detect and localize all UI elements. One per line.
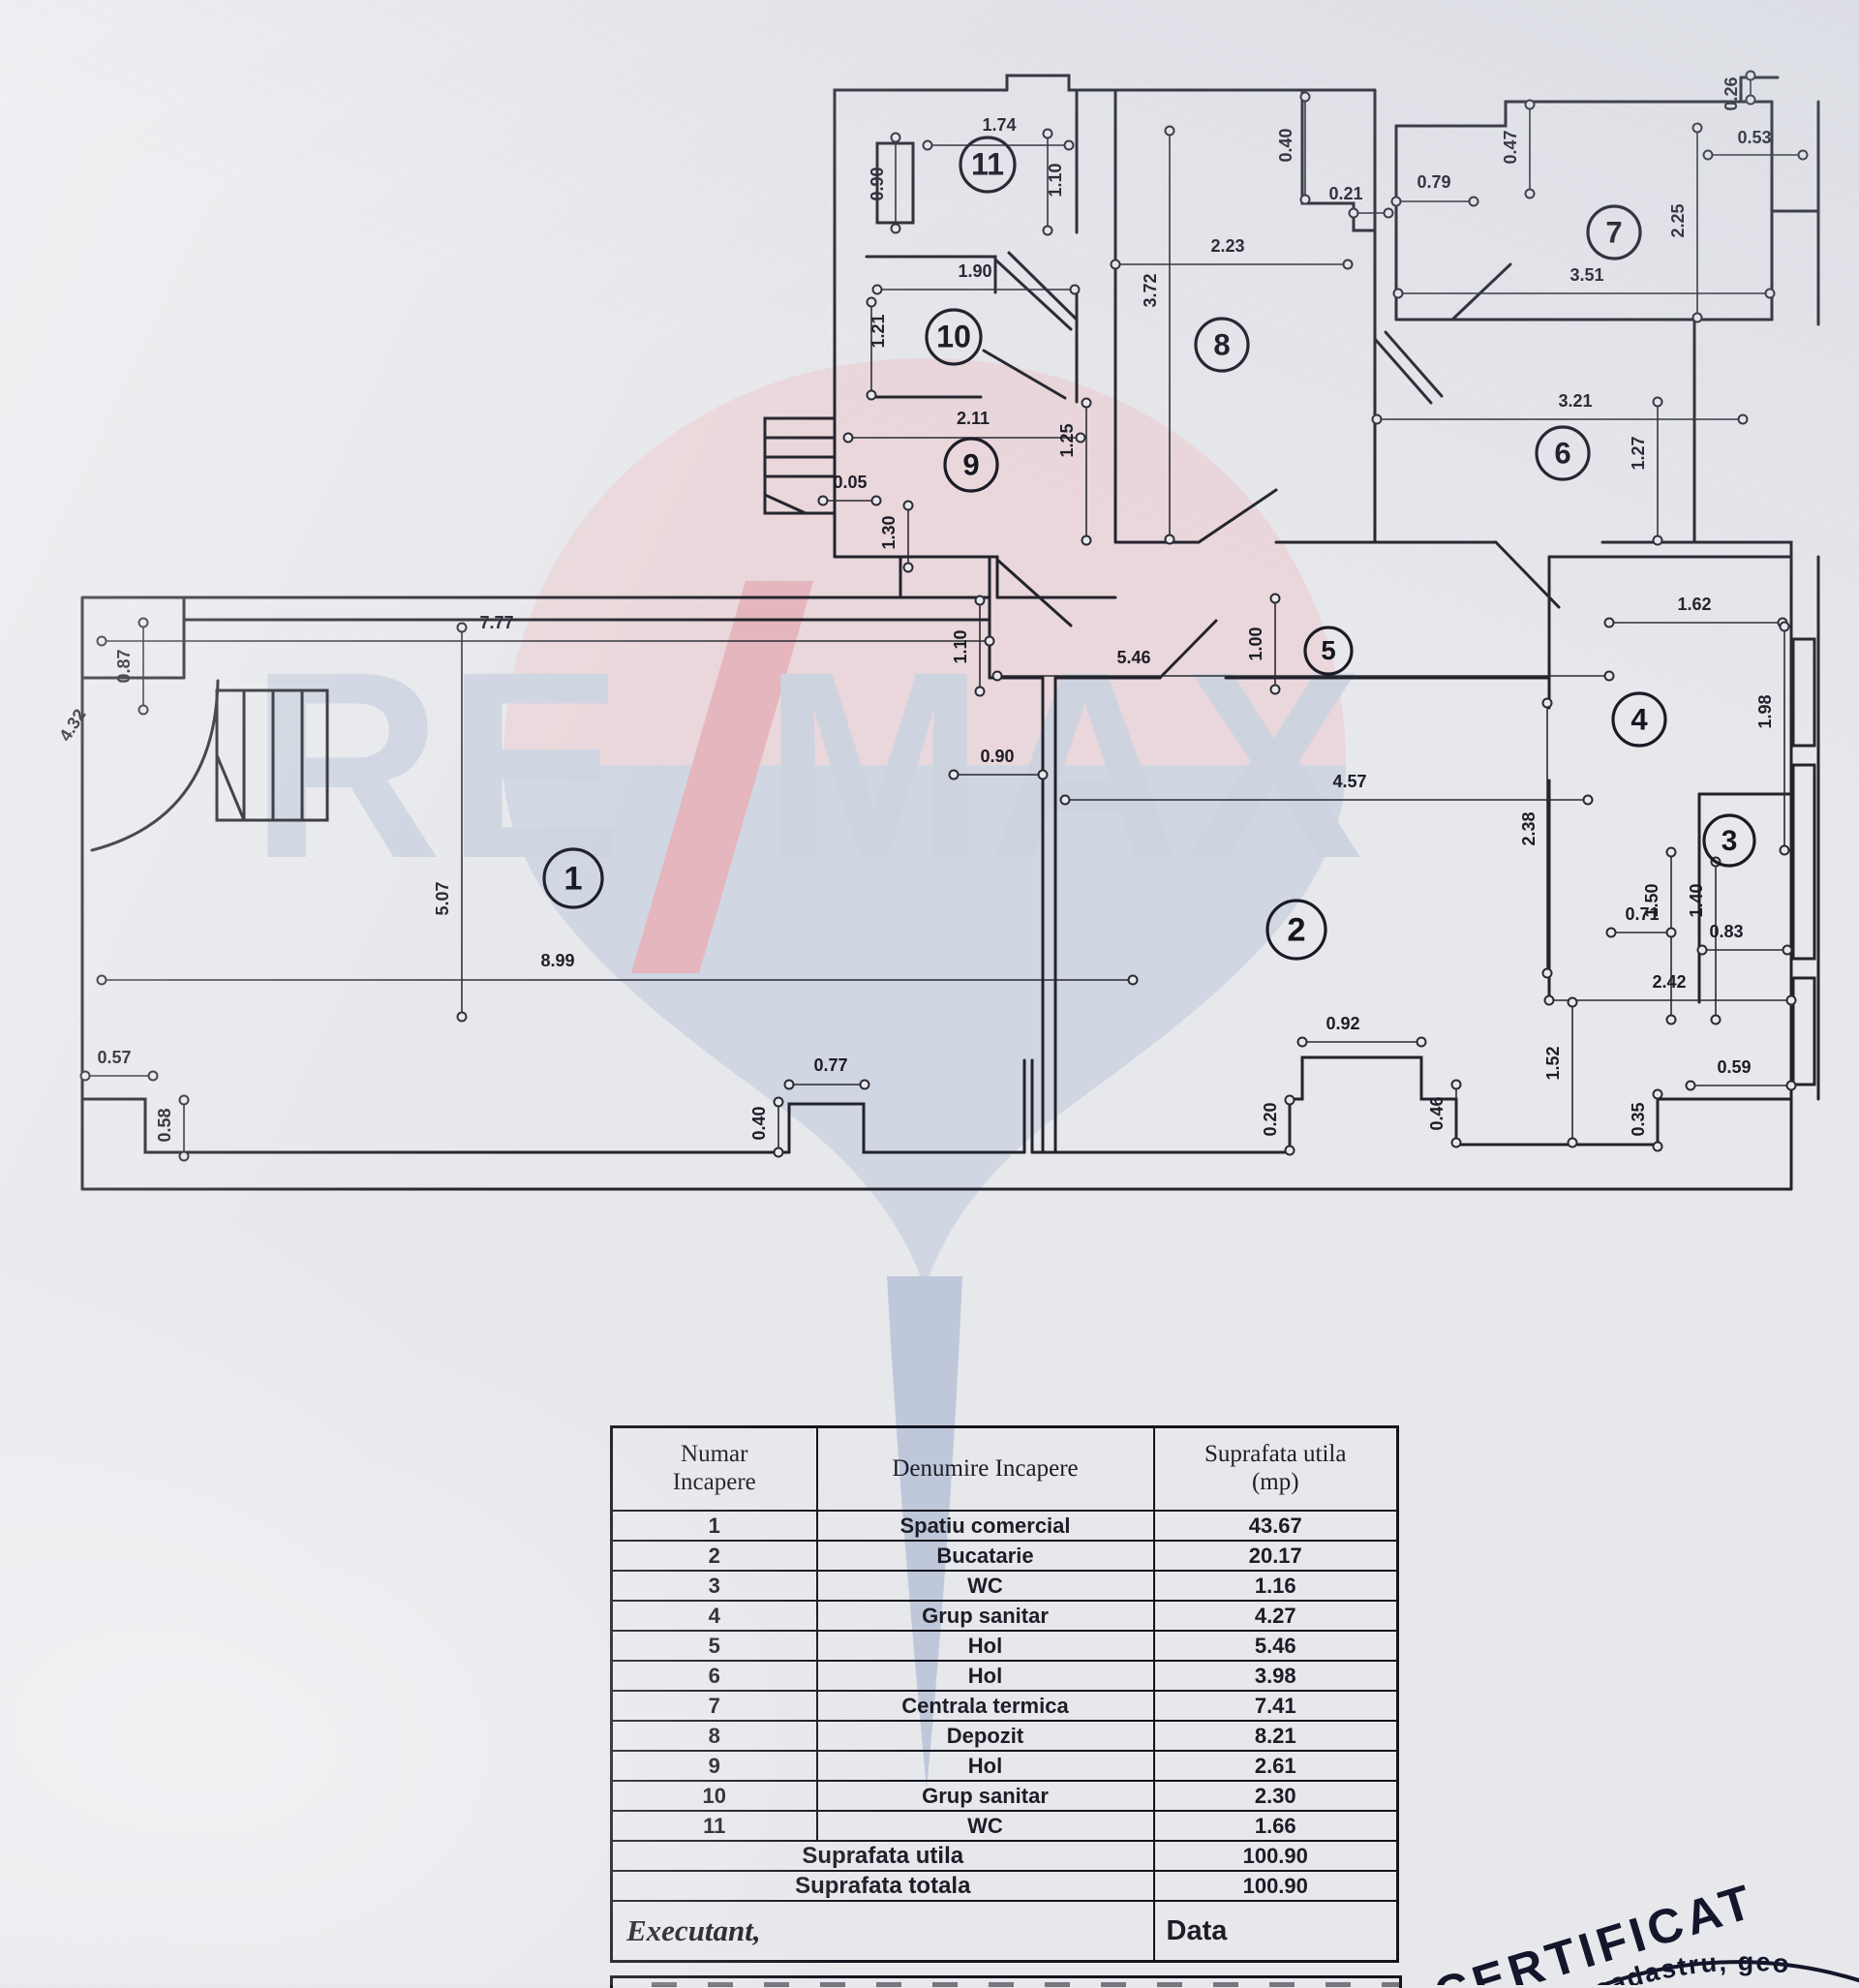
wall-segment [1007, 76, 1375, 90]
dimension: 0.79 [1392, 172, 1478, 206]
dimension: 0.87 [114, 619, 148, 715]
dimension-label: 0.20 [1261, 1102, 1280, 1136]
dimension-label: 8.99 [540, 951, 574, 970]
wall-segment [217, 755, 244, 820]
dimension-node [1392, 198, 1401, 206]
dimension-node [976, 596, 985, 605]
dimension: 1.90 [873, 261, 1080, 294]
dimension-label: 7.77 [479, 613, 513, 632]
dimension-node [1166, 535, 1174, 544]
dimension-label: 0.40 [1276, 128, 1295, 162]
dimension-node [1129, 976, 1138, 985]
table-row: 10Grup sanitar2.30 [612, 1781, 1398, 1811]
table-cell: 6 [612, 1661, 817, 1691]
room-number-label: 11 [971, 147, 1004, 182]
dimension: 2.25 [1668, 124, 1702, 322]
dimension-node [1712, 1016, 1721, 1025]
table-row: 11WC1.66 [612, 1811, 1398, 1841]
dimension-node [844, 434, 853, 443]
dimension-label: 0.87 [114, 649, 134, 683]
dimension-node [1654, 1090, 1662, 1099]
dimension-node [1082, 399, 1091, 408]
wall-segment [82, 1099, 789, 1152]
dimension-node [892, 225, 900, 233]
dimension-node [1569, 998, 1577, 1007]
dimension: 2.42 [1545, 972, 1796, 1005]
dimension-node [872, 497, 881, 505]
table-cell: 1.66 [1154, 1811, 1398, 1841]
dimension-label: 2.38 [1519, 811, 1539, 845]
dimension-node [1061, 796, 1070, 805]
table-cell: 2 [612, 1541, 817, 1571]
dimension-label: 1.25 [1057, 423, 1077, 457]
table-header: NumarIncapereDenumire IncapereSuprafata … [612, 1427, 1398, 1512]
dimension-label: 0.40 [749, 1106, 769, 1140]
column-header: Denumire Incapere [817, 1427, 1154, 1512]
dimension-node [81, 1072, 90, 1081]
room-number: 8 [1196, 319, 1248, 371]
dimension: 0.21 [1328, 184, 1392, 218]
table-row: 6Hol3.98 [612, 1661, 1398, 1691]
dimension-label: 1.27 [1629, 436, 1648, 470]
table-cell: Grup sanitar [817, 1781, 1154, 1811]
dimension: 1.62 [1605, 595, 1787, 627]
dimension-node [924, 141, 932, 150]
wall-segment [1452, 264, 1510, 320]
dimension-node [1799, 151, 1808, 160]
dimension-node [1039, 771, 1048, 780]
dimension-label: 0.21 [1328, 184, 1362, 203]
dimension-label: 1.98 [1755, 694, 1775, 728]
room-number-label: 3 [1722, 825, 1738, 857]
table-cell: 4 [612, 1601, 817, 1631]
table-row: 7Centrala termica7.41 [612, 1691, 1398, 1721]
dimension-node [1286, 1147, 1295, 1155]
dimension-label: 1.30 [879, 515, 899, 549]
table-cell: 3 [612, 1571, 817, 1601]
dimension: 0.90 [868, 134, 900, 233]
dimension-label: 5.07 [433, 881, 452, 915]
dimension-node [993, 672, 1002, 681]
room-number-label: 1 [564, 860, 582, 897]
dimension-label: 0.59 [1717, 1057, 1751, 1077]
dimension-label: 0.71 [1625, 904, 1659, 924]
dimension-node [1044, 227, 1052, 235]
room-number-label: 9 [962, 447, 979, 481]
dimension-label: 0.26 [1722, 76, 1741, 110]
wall-segment [1290, 1057, 1791, 1152]
dimension-label: 2.23 [1210, 236, 1244, 256]
dimension-node [1605, 619, 1614, 627]
wall-segment [995, 260, 1071, 329]
dimension-node [1044, 130, 1052, 138]
wall-segment [1009, 253, 1077, 320]
table-cell: 5.46 [1154, 1631, 1398, 1661]
summary-value: 100.90 [1154, 1841, 1398, 1871]
dimension-node [1667, 848, 1676, 857]
table-row: 4Grup sanitar4.27 [612, 1601, 1398, 1631]
executant-label: Executant, [612, 1901, 1154, 1962]
table-cell: Spatiu comercial [817, 1511, 1154, 1541]
dimension: 0.53 [1704, 128, 1808, 160]
dimension-node [1787, 1082, 1796, 1090]
dimension-node [861, 1081, 869, 1089]
dimension: 1.52 [1543, 998, 1577, 1147]
dimension: 0.71 [1607, 904, 1676, 937]
dimension-label: 0.92 [1326, 1014, 1359, 1033]
dimension-node [1787, 996, 1796, 1005]
dimension-label: 1.52 [1543, 1046, 1563, 1080]
dimension-node [1543, 699, 1552, 708]
table-cell: 7.41 [1154, 1691, 1398, 1721]
wall-segment [1793, 639, 1814, 746]
dimension-node [1373, 415, 1382, 424]
table-cell: Grup sanitar [817, 1601, 1154, 1631]
room-number-label: 5 [1321, 635, 1335, 665]
dimension-node [180, 1152, 189, 1161]
dimension-node [1286, 1096, 1295, 1105]
dimension-label: 3.72 [1141, 273, 1160, 307]
dimension-node [1781, 623, 1789, 631]
dimension: 0.40 [1276, 93, 1310, 204]
wall-segment [1302, 90, 1375, 230]
table-header-row: NumarIncapereDenumire IncapereSuprafata … [612, 1427, 1398, 1512]
table-cell: 4.27 [1154, 1601, 1398, 1631]
table-cell: 10 [612, 1781, 817, 1811]
dimension-node [986, 637, 994, 646]
table-row: 9Hol2.61 [612, 1751, 1398, 1781]
dimension-node [873, 286, 882, 294]
dimension-label: 0.46 [1427, 1096, 1447, 1130]
table-cell: Hol [817, 1751, 1154, 1781]
dimension-node [868, 391, 876, 400]
dimension-node [1166, 127, 1174, 136]
cut-off-table-row [610, 1975, 1402, 1988]
table-cell: 9 [612, 1751, 817, 1781]
dimension: 0.40 [749, 1098, 783, 1157]
dimension-node [1071, 286, 1080, 294]
table-body: 1Spatiu comercial43.672Bucatarie20.173WC… [612, 1511, 1398, 1901]
room-number-label: 6 [1554, 436, 1570, 470]
dimension-label: 1.00 [1246, 627, 1265, 660]
dimension-node [1452, 1139, 1461, 1147]
dimension: 0.26 [1722, 72, 1755, 111]
dimension-label: 1.10 [1046, 163, 1065, 197]
table-cell: Centrala termica [817, 1691, 1154, 1721]
room-number-label: 10 [936, 320, 971, 354]
dimension-node [1543, 969, 1552, 978]
table-cell: 7 [612, 1691, 817, 1721]
dimension-node [1065, 141, 1074, 150]
dimension-node [1298, 1038, 1307, 1047]
dimension-node [1654, 1143, 1662, 1151]
dimension-label: 0.53 [1737, 128, 1771, 147]
dimension-node [149, 1072, 158, 1081]
dimension: 3.51 [1394, 265, 1775, 298]
table-row: 1Spatiu comercial43.67 [612, 1511, 1398, 1541]
dimension-node [904, 502, 913, 510]
table-cell: Bucatarie [817, 1541, 1154, 1571]
wall-segment [1386, 332, 1442, 396]
room-number-label: 8 [1213, 327, 1230, 361]
dimension-node [1667, 1016, 1676, 1025]
dimension-node [1781, 846, 1789, 855]
dimension-node [458, 1013, 467, 1022]
table-cell: 8.21 [1154, 1721, 1398, 1751]
dimension: 0.57 [81, 1048, 158, 1081]
table-cell: 3.98 [1154, 1661, 1398, 1691]
dimension-node [976, 688, 985, 696]
table-cell: 11 [612, 1811, 817, 1841]
dimension-node [1747, 96, 1755, 105]
dimension: 2.38 [1519, 699, 1552, 978]
column-header: NumarIncapere [612, 1427, 817, 1512]
dimension-label: 1.62 [1677, 595, 1711, 614]
dimension-label: 1.40 [1687, 883, 1706, 917]
dimension-label: 2.25 [1668, 203, 1688, 237]
dimension-node [1271, 686, 1280, 694]
dimension: 3.21 [1373, 391, 1748, 424]
dimension-label: 3.21 [1558, 391, 1592, 411]
table-cell: 20.17 [1154, 1541, 1398, 1571]
dimension-node [1545, 996, 1554, 1005]
dimension-label: 0.83 [1709, 922, 1743, 941]
dimension-node [1077, 434, 1085, 443]
dimension-label: 0.77 [813, 1055, 847, 1075]
dimension-node [1654, 398, 1662, 407]
dimension: 2.23 [1112, 236, 1353, 269]
dimension-label: 0.57 [97, 1048, 131, 1067]
summary-label: Suprafata utila [612, 1841, 1154, 1871]
dimension-node [1698, 946, 1707, 955]
dimension-label: 0.05 [833, 473, 867, 492]
dimension-label: 1.10 [951, 629, 970, 663]
dimension: 0.20 [1261, 1096, 1295, 1155]
wall-segment [1793, 978, 1814, 1085]
dimension-node [1654, 536, 1662, 545]
executant-row: Executant, Data [612, 1901, 1398, 1962]
room-number-label: 2 [1287, 911, 1305, 948]
wall-segment [1793, 765, 1814, 959]
table-cell: 1 [612, 1511, 817, 1541]
dimension-node [1783, 946, 1792, 955]
dimension-node [1687, 1082, 1695, 1090]
dimension-node [950, 771, 959, 780]
dimension-label: 4.57 [1332, 772, 1366, 791]
dimension-node [180, 1096, 189, 1105]
dimension: 0.46 [1427, 1081, 1461, 1147]
dimension-label: 0.90 [868, 167, 887, 200]
dimension-label: 4.32 [55, 706, 90, 745]
dimension-node [1417, 1038, 1426, 1047]
dimension-label: 3.51 [1569, 265, 1603, 285]
dimension-node [1605, 672, 1614, 681]
dimension-label: 1.74 [982, 115, 1016, 135]
dimension-node [785, 1081, 794, 1089]
table-cell: Hol [817, 1631, 1154, 1661]
table-cell: 43.67 [1154, 1511, 1398, 1541]
room-schedule-table: NumarIncapereDenumire IncapereSuprafata … [610, 1425, 1399, 1963]
dimension-node [1350, 209, 1358, 218]
table-cell: 8 [612, 1721, 817, 1751]
wall-segment [1694, 542, 1791, 557]
table-cell: 5 [612, 1631, 817, 1661]
dimension-node [1271, 595, 1280, 603]
dimension-node [139, 619, 148, 627]
dimension: 0.35 [1629, 1090, 1662, 1151]
dimension-node [1526, 101, 1535, 109]
dimension-node [1112, 260, 1120, 269]
dimension-node [1766, 290, 1775, 298]
dimension-label: 0.79 [1417, 172, 1450, 192]
dimension-node [139, 706, 148, 715]
room-number-label: 7 [1605, 215, 1622, 249]
dimension-label: 0.47 [1501, 130, 1520, 164]
dimension-label: 1.90 [958, 261, 991, 281]
room-number: 10 [927, 310, 981, 364]
dimension-node [1747, 72, 1755, 80]
dimension-node [775, 1098, 783, 1107]
dimension-node [904, 564, 913, 572]
dimension-label: 1.21 [869, 314, 888, 348]
table-row: 2Bucatarie20.17 [612, 1541, 1398, 1571]
table-cell: Hol [817, 1661, 1154, 1691]
table-cell: 2.61 [1154, 1751, 1398, 1781]
table-row: 8Depozit8.21 [612, 1721, 1398, 1751]
dimension-node [1470, 198, 1478, 206]
table-footer: Executant, Data [612, 1901, 1398, 1962]
dimension-label: 0.58 [155, 1108, 174, 1142]
dimension-node [1301, 93, 1310, 102]
room-number: 3 [1704, 815, 1754, 866]
dimension-node [892, 134, 900, 142]
dimension: 0.92 [1298, 1014, 1426, 1047]
summary-row: Suprafata utila100.90 [612, 1841, 1398, 1871]
wall-segment [1375, 339, 1431, 403]
wall-segment [1396, 102, 1772, 126]
dimension-node [1693, 314, 1702, 322]
dimension-node [1344, 260, 1353, 269]
surveyor-stamp: să execute lucrări de cadastru, geo CERT… [1341, 1874, 1859, 1985]
dimension-node [1584, 796, 1593, 805]
room-number: 6 [1537, 427, 1589, 479]
dimension-node [819, 497, 828, 505]
scanned-floor-plan-page: { "colors":{ "paper":"#e7e8ec", "ink":"#… [0, 0, 1859, 1985]
dimension: 0.83 [1698, 922, 1792, 955]
dimension-node [1693, 124, 1702, 133]
data-label: Data [1154, 1901, 1398, 1962]
dimension-node [1385, 209, 1393, 218]
room-number-label: 4 [1630, 702, 1648, 736]
dimension-node [458, 624, 467, 632]
dimension-node [1301, 196, 1310, 204]
dimension-node [1526, 190, 1535, 199]
dimension-node [1394, 290, 1403, 298]
summary-value: 100.90 [1154, 1871, 1398, 1901]
dimension-label: 5.46 [1116, 648, 1150, 667]
dimension-node [98, 976, 107, 985]
dimension-node [775, 1148, 783, 1157]
dimension-label: 0.35 [1629, 1102, 1648, 1136]
dimension-node [1667, 929, 1676, 937]
summary-row: Suprafata totala100.90 [612, 1871, 1398, 1901]
dimension-label: 2.11 [957, 409, 990, 428]
dimension-node [1704, 151, 1713, 160]
table-row: 5Hol5.46 [612, 1631, 1398, 1661]
dimension-node [868, 298, 876, 307]
dimension-node [98, 637, 107, 646]
table-row: 3WC1.16 [612, 1571, 1398, 1601]
dimension-node [1452, 1081, 1461, 1089]
dimension-node [1607, 929, 1616, 937]
dimension-node [1569, 1139, 1577, 1147]
dimension: 1.98 [1755, 623, 1789, 855]
table-cell: Depozit [817, 1721, 1154, 1751]
dimension-label: 2.42 [1652, 972, 1686, 992]
room-number: 4 [1613, 693, 1665, 746]
wall-segment [92, 681, 218, 850]
dimension-node [1082, 536, 1091, 545]
dimension-label: 0.90 [980, 747, 1014, 766]
table-cell: WC [817, 1811, 1154, 1841]
room-number: 7 [1588, 206, 1640, 259]
summary-label: Suprafata totala [612, 1871, 1154, 1901]
table-cell: 2.30 [1154, 1781, 1398, 1811]
table-cell: 1.16 [1154, 1571, 1398, 1601]
dimension: 0.59 [1687, 1057, 1796, 1090]
dimension: 0.58 [155, 1096, 189, 1161]
column-header: Suprafata utila(mp) [1154, 1427, 1398, 1512]
table-cell: WC [817, 1571, 1154, 1601]
dimension-node [1739, 415, 1748, 424]
dimension: 4.32 [55, 706, 90, 745]
